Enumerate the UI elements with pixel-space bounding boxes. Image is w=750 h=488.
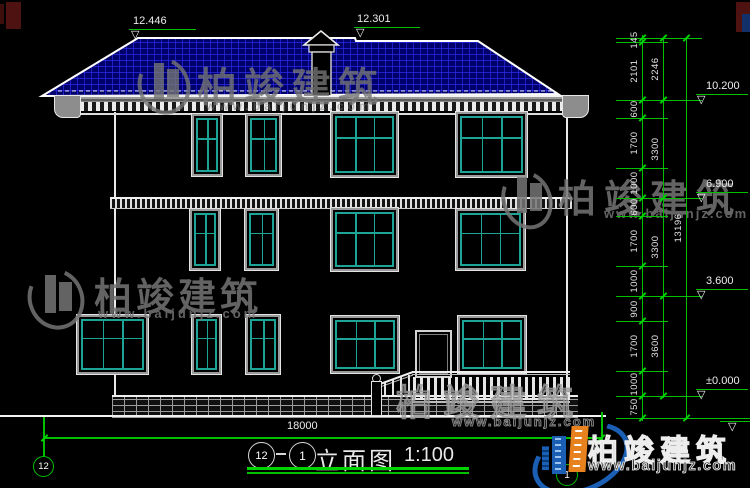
window — [77, 315, 148, 374]
dim-label: 1700 — [629, 334, 640, 357]
corner-fragment-top-left-2 — [0, 4, 4, 24]
corner-fragment-top-right-2 — [742, 14, 750, 32]
window-glazing — [194, 213, 216, 266]
dim-total-label: 13196 — [673, 214, 684, 243]
cornice-end-left — [54, 95, 81, 118]
title-underline-thin — [247, 472, 469, 474]
wall-right-edge — [566, 112, 568, 397]
dim-label: 1000 — [629, 171, 640, 194]
elevation-marker-label: 6.900 — [706, 178, 734, 190]
window-glazing — [335, 212, 394, 267]
window-glazing — [196, 319, 217, 370]
logo-building-icon — [552, 436, 566, 474]
window-transom — [252, 338, 274, 340]
title-dash — [276, 453, 286, 455]
dim-label: 3300 — [650, 235, 661, 258]
window-transom — [462, 137, 521, 139]
elevation-marker-triangle-icon: ▽ — [697, 95, 705, 105]
window-mullion — [501, 322, 503, 367]
dim-label: 2101 — [629, 59, 640, 82]
window — [331, 316, 399, 373]
window-mullion — [483, 322, 485, 367]
window-transom — [464, 338, 520, 340]
elevation-marker-triangle-icon: ▽ — [697, 193, 705, 203]
dim-label: 3300 — [650, 137, 661, 160]
elevation-marker-triangle-icon: ▽ — [697, 290, 705, 300]
title-underline-thick — [247, 467, 469, 470]
window-mullion — [356, 322, 358, 367]
dim-label: 1000 — [629, 372, 640, 395]
watermark-logo-icon — [502, 170, 552, 230]
dim-label: 600 — [629, 198, 640, 215]
window-glazing — [250, 319, 276, 370]
title-circle-right-label: 1 — [299, 449, 306, 463]
dim-label: 1000 — [629, 269, 640, 292]
window-mullion — [482, 118, 484, 171]
window-transom — [198, 338, 215, 340]
window-transom — [337, 137, 392, 139]
window — [456, 112, 527, 177]
window-mullion — [207, 321, 209, 368]
window-glazing — [460, 116, 523, 173]
dim-label: 900 — [629, 300, 640, 317]
window-mullion — [262, 215, 264, 264]
window-glazing — [81, 319, 144, 370]
window-glazing — [462, 320, 522, 369]
window-mullion — [207, 120, 209, 170]
elevation-marker-triangle-icon: ▽ — [131, 30, 139, 40]
cornice-end-right — [562, 95, 589, 118]
watermark-url: www.baijunjz.com — [98, 306, 258, 321]
window-transom — [251, 233, 272, 235]
dim-label: 1700 — [629, 229, 640, 252]
dim-label: 145 — [629, 31, 640, 48]
corner-fragment-top-left — [6, 2, 21, 29]
elevation-drawing: 柏竣建筑 www.baijunjz.com 柏竣建筑 www.baijunjz.… — [0, 0, 750, 488]
title-view-circle-left: 12 — [248, 442, 275, 469]
elevation-marker-label: 3.600 — [706, 275, 734, 287]
window-mullion — [374, 322, 376, 367]
newel-post — [371, 381, 382, 416]
view-scale: 1:100 — [404, 444, 454, 467]
window-mullion — [374, 118, 376, 171]
watermark-url: www.baijunjz.com — [206, 99, 374, 113]
window-mullion — [481, 215, 483, 264]
window — [331, 208, 398, 271]
window — [190, 209, 220, 270]
dim-extension-line — [616, 396, 702, 397]
title-circle-left-label: 12 — [255, 450, 267, 462]
elevation-marker-triangle-icon: ▽ — [697, 390, 705, 400]
window-glazing — [335, 320, 395, 369]
window — [458, 316, 526, 373]
door-panel — [419, 334, 448, 374]
window-mullion — [264, 120, 266, 170]
window-transom — [196, 233, 214, 235]
watermark-logo-icon — [138, 57, 190, 115]
window — [245, 209, 278, 270]
dim-label: 600 — [629, 100, 640, 117]
window-transom — [83, 338, 142, 340]
window — [246, 114, 281, 176]
elevation-marker-label: 12.446 — [133, 15, 167, 27]
window-mullion — [355, 118, 357, 171]
elevation-marker-label: ±0.000 — [706, 375, 740, 387]
watermark-logo-icon — [28, 268, 84, 330]
window-mullion — [103, 321, 105, 368]
width-dim-line — [44, 437, 602, 439]
window — [192, 114, 222, 176]
window-glazing — [250, 118, 277, 172]
logo-building-icon — [542, 446, 549, 470]
window — [331, 112, 398, 177]
dim-chain-line-total — [686, 37, 687, 420]
window-mullion — [501, 118, 503, 171]
window — [192, 315, 221, 374]
window-glazing — [249, 213, 274, 266]
dim-chain-line-inner — [642, 35, 643, 421]
window-glazing — [196, 118, 218, 172]
view-title: 立面图 — [315, 441, 396, 476]
company-logo: 柏竣建筑 www.baijunjz.com — [528, 420, 750, 488]
title-view-circle-right: 1 — [289, 442, 316, 469]
grid-bubble-left: 12 — [33, 456, 54, 477]
dim-label: 3600 — [650, 334, 661, 357]
window — [246, 315, 280, 374]
window-mullion — [205, 215, 207, 264]
window-transom — [198, 138, 216, 140]
window-transom — [337, 338, 393, 340]
dim-extension-line — [616, 296, 702, 297]
elevation-marker-label: 12.301 — [357, 13, 391, 25]
dim-chain-line-mid — [663, 37, 664, 398]
elevation-marker-triangle-icon: ▽ — [356, 28, 364, 38]
logo-building-icon — [568, 426, 588, 472]
window-transom — [252, 138, 275, 140]
window-mullion — [122, 321, 124, 368]
railing-top-rail — [412, 371, 570, 373]
logo-url: www.baijunjz.com — [588, 458, 737, 474]
dim-label: 750 — [629, 398, 640, 415]
grid-bubble-left-label: 12 — [38, 461, 49, 472]
dim-label: 2246 — [650, 57, 661, 80]
width-dim-label: 18000 — [287, 420, 318, 432]
elevation-marker-label: 10.200 — [706, 80, 740, 92]
window-mullion — [374, 214, 376, 265]
window-mullion — [263, 321, 265, 368]
window-glazing — [335, 116, 394, 173]
window-transom — [337, 232, 392, 234]
window-transom — [462, 233, 519, 235]
window-mullion — [355, 214, 357, 265]
dim-label: 1700 — [629, 131, 640, 154]
